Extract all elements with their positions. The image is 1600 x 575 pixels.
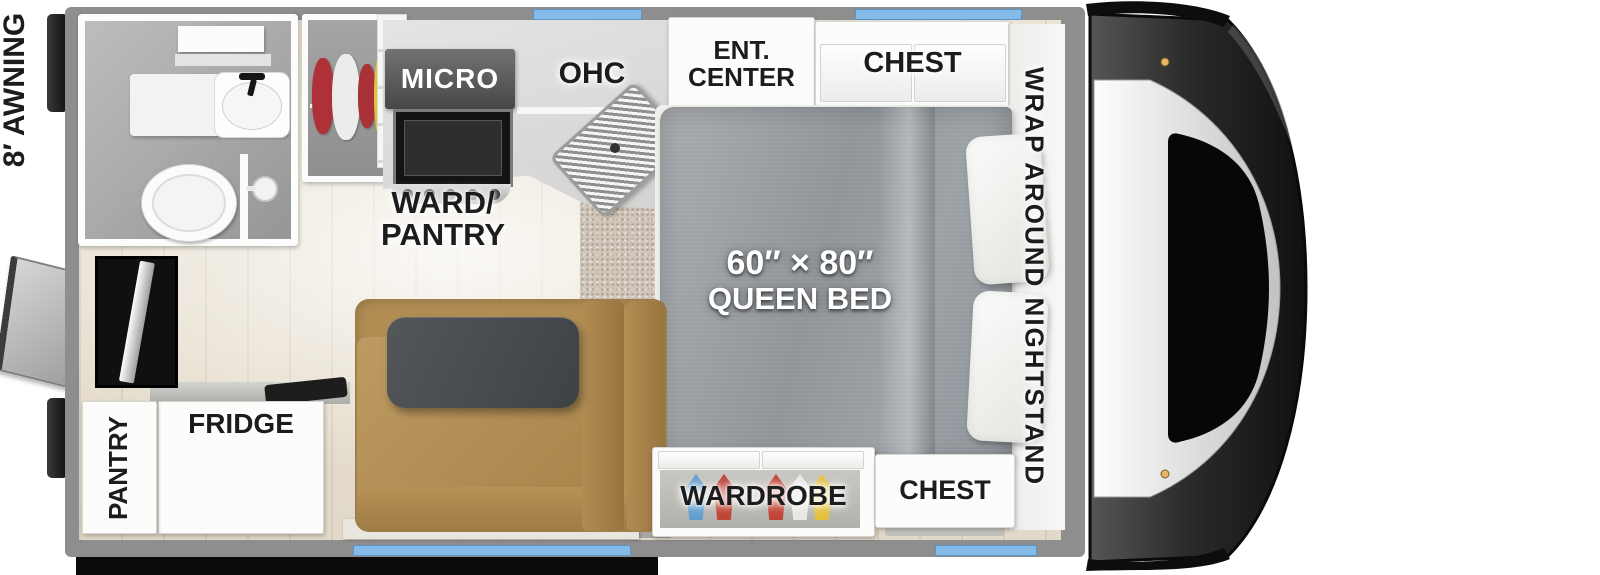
bath-shelf bbox=[178, 26, 264, 52]
bed-type-label: QUEEN BED bbox=[675, 282, 925, 316]
pantry-label: PANTRY bbox=[105, 398, 135, 538]
chest-bottom-label: CHEST bbox=[876, 455, 1014, 527]
bathroom-sink bbox=[214, 72, 290, 138]
micro-label: MICRO bbox=[401, 63, 499, 95]
bathroom bbox=[78, 14, 298, 246]
bed-label: 60″ × 80″ QUEEN BED bbox=[675, 245, 925, 316]
chest-bottom: CHEST bbox=[875, 454, 1015, 528]
table bbox=[387, 317, 579, 408]
entry-door bbox=[95, 256, 178, 388]
chest-top: CHEST bbox=[815, 21, 1010, 106]
floorplan-canvas: 8′ AWNING bbox=[0, 0, 1600, 575]
window bbox=[353, 545, 631, 556]
bath-shelf-lower bbox=[175, 54, 271, 66]
bed-size-label: 60″ × 80″ bbox=[675, 245, 925, 282]
fridge-label: FRIDGE bbox=[159, 410, 323, 439]
ward-pantry-label: WARD/ PANTRY bbox=[353, 187, 533, 250]
window bbox=[855, 9, 1022, 20]
micro-cabinet: MICRO bbox=[385, 49, 515, 109]
pantry: PANTRY bbox=[82, 401, 157, 534]
hanging-clothes bbox=[312, 58, 334, 134]
chest-top-label: CHEST bbox=[816, 22, 1009, 105]
ent-label-line1: ENT. bbox=[688, 37, 795, 64]
ent-label-line2: CENTER bbox=[688, 64, 795, 91]
truck-cab bbox=[1078, 0, 1318, 575]
clearance-light bbox=[1161, 470, 1169, 478]
hanging-clothes bbox=[332, 54, 360, 140]
sofa-backrest bbox=[582, 301, 624, 531]
microwave bbox=[393, 109, 513, 187]
fridge: FRIDGE bbox=[158, 401, 324, 534]
bath-divider-wall bbox=[240, 154, 248, 242]
clearance-light bbox=[1161, 58, 1169, 66]
faucet bbox=[239, 73, 265, 80]
shower-head bbox=[252, 176, 278, 202]
door-panel bbox=[119, 261, 155, 384]
wardrobe: WARDROBE bbox=[652, 447, 875, 537]
window bbox=[533, 9, 642, 20]
wardrobe-label: WARDROBE bbox=[653, 466, 874, 526]
window bbox=[935, 545, 1037, 556]
nightstand-label: WRAP AROUND NIGHTSTAND bbox=[1003, 27, 1065, 527]
toilet bbox=[141, 164, 237, 242]
awning-label: 8′ AWNING bbox=[0, 0, 40, 180]
sink-drain bbox=[610, 143, 620, 153]
ent-center: ENT. CENTER bbox=[668, 17, 815, 111]
camper-body: MICRO OHC ENT. CENTER bbox=[65, 7, 1085, 557]
